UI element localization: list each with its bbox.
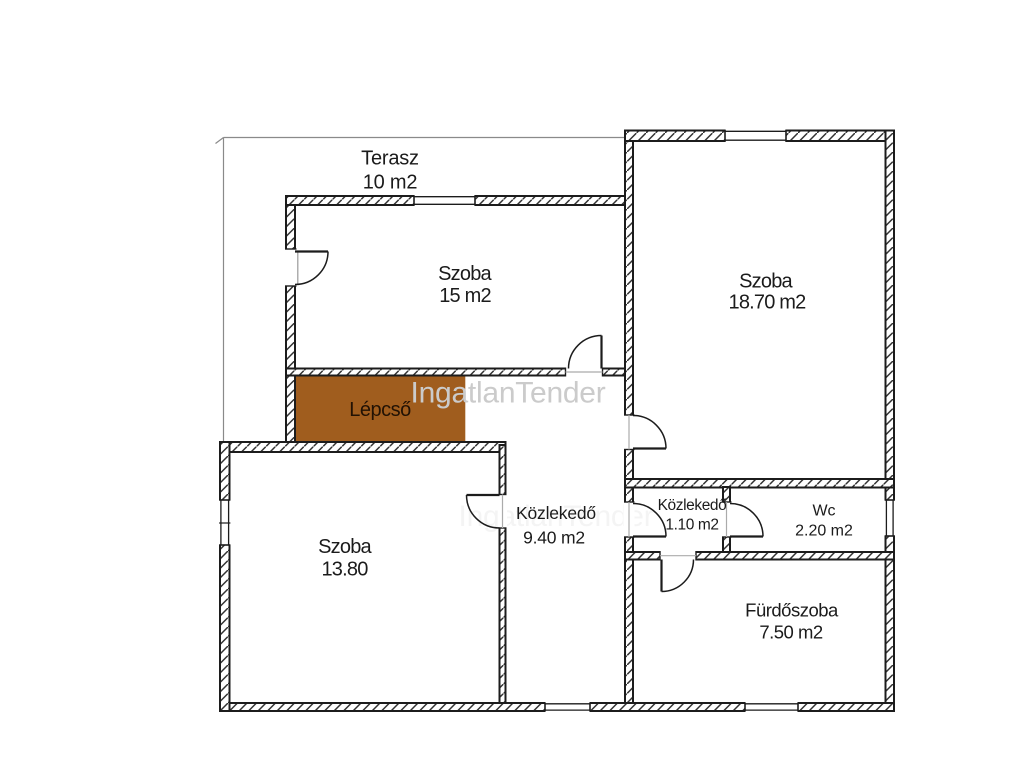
svg-text:Szoba: Szoba bbox=[739, 271, 793, 293]
svg-text:15 m2: 15 m2 bbox=[439, 285, 491, 307]
svg-text:Wc: Wc bbox=[812, 503, 835, 520]
svg-text:Lépcső: Lépcső bbox=[349, 399, 411, 421]
svg-text:Szoba: Szoba bbox=[438, 263, 492, 285]
svg-text:9.40 m2: 9.40 m2 bbox=[523, 528, 585, 548]
svg-text:Közlekedő: Közlekedő bbox=[516, 503, 596, 523]
svg-text:18.70 m2: 18.70 m2 bbox=[729, 292, 807, 314]
svg-text:13.80: 13.80 bbox=[321, 559, 368, 581]
svg-text:7.50 m2: 7.50 m2 bbox=[759, 622, 823, 643]
svg-text:Terasz: Terasz bbox=[361, 148, 419, 170]
svg-text:2.20 m2: 2.20 m2 bbox=[795, 522, 853, 539]
svg-text:Közlekedő: Közlekedő bbox=[658, 497, 727, 514]
svg-text:Szoba: Szoba bbox=[318, 536, 372, 558]
svg-text:Fürdőszoba: Fürdőszoba bbox=[745, 600, 839, 621]
svg-text:IngatlanTender: IngatlanTender bbox=[411, 377, 606, 410]
svg-text:10 m2: 10 m2 bbox=[363, 172, 418, 194]
svg-text:1.10 m2: 1.10 m2 bbox=[665, 516, 718, 533]
